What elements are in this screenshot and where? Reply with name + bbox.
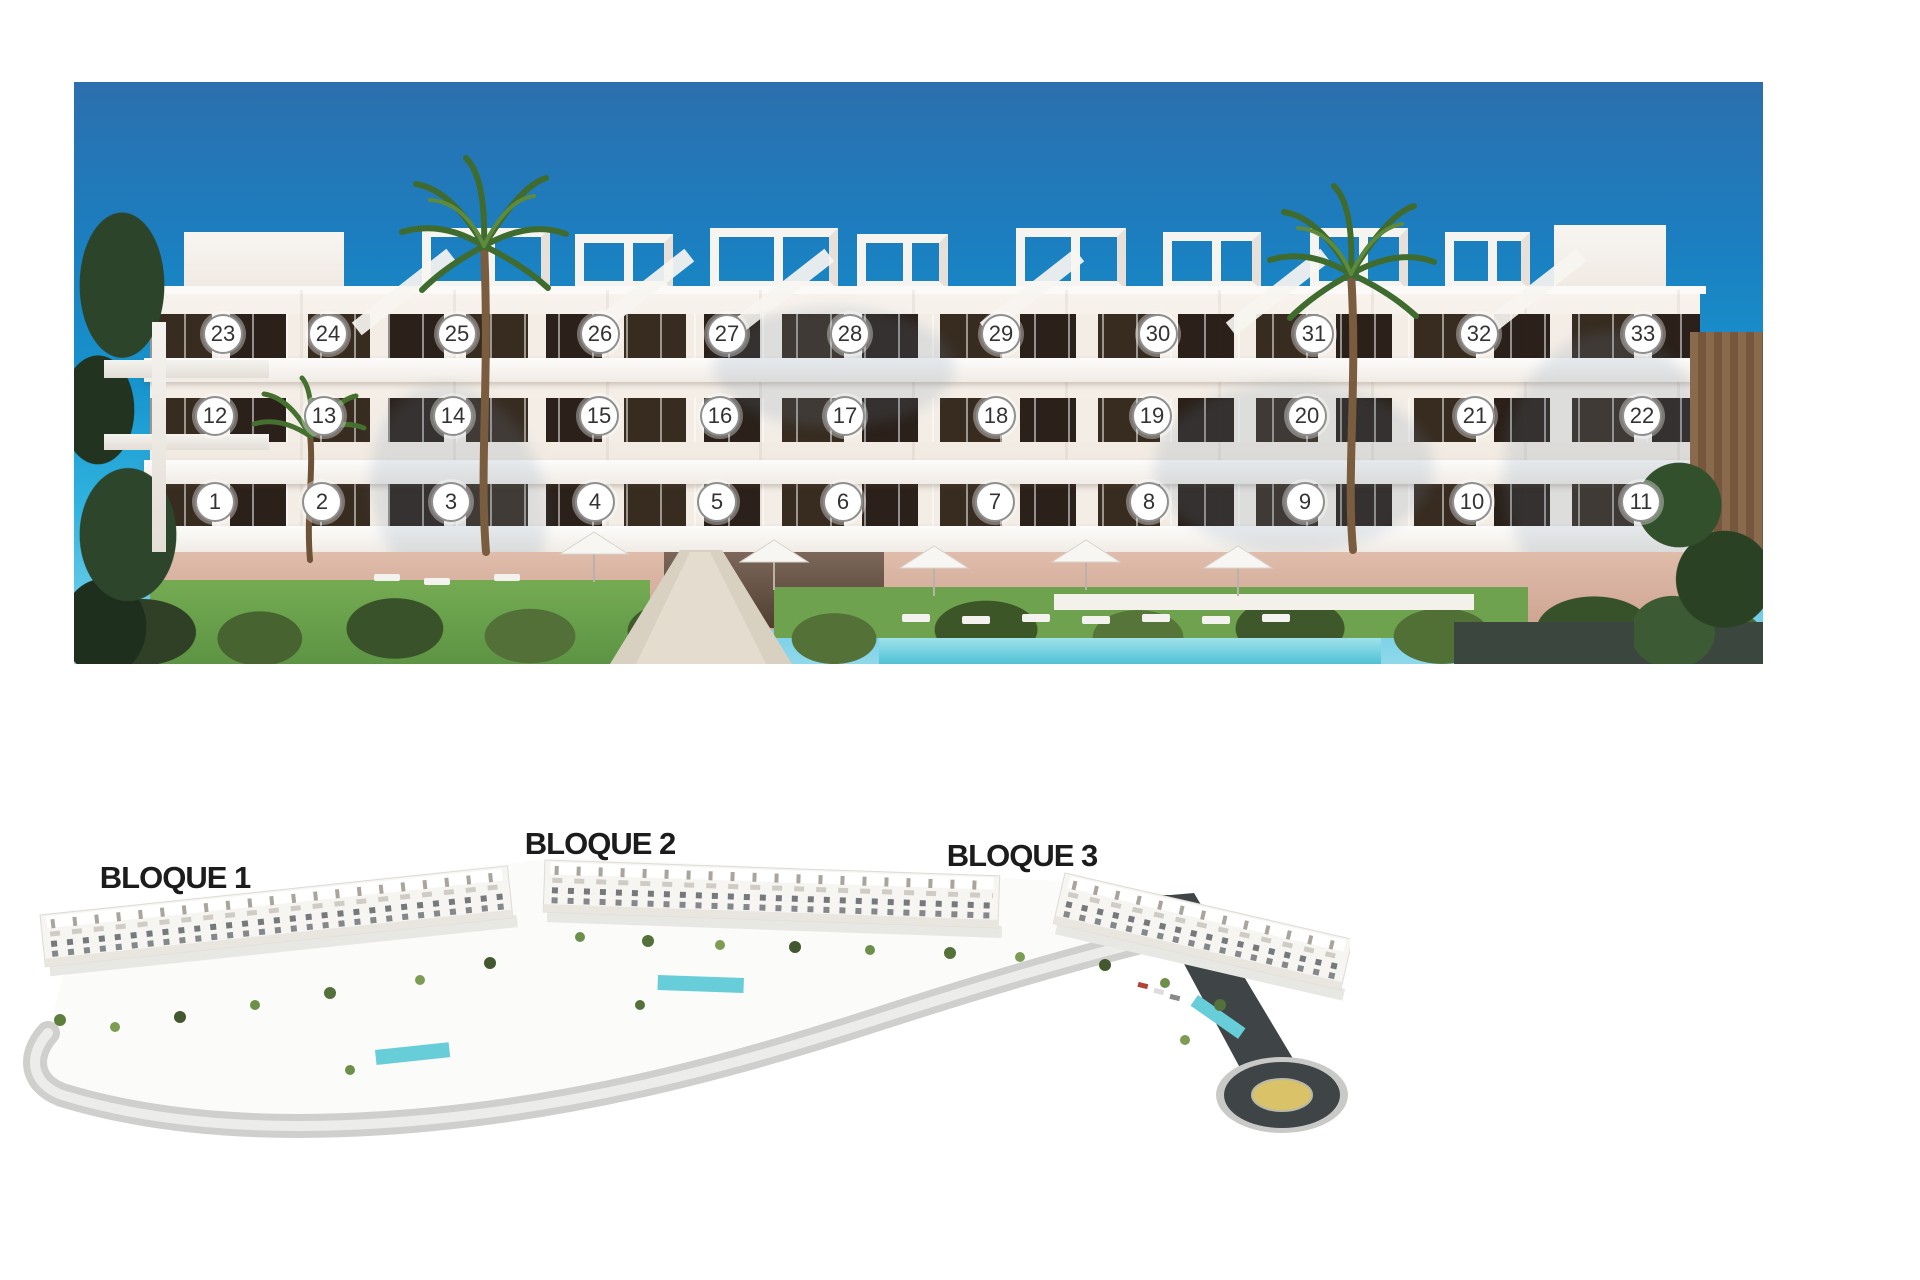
unit-badge-2[interactable]: 2 — [302, 482, 342, 522]
parked-cars — [1137, 982, 1180, 1001]
unit-badge-3[interactable]: 3 — [431, 482, 471, 522]
unit-badge-27[interactable]: 27 — [707, 314, 747, 354]
unit-badge-13[interactable]: 13 — [304, 396, 344, 436]
roundabout-center — [1252, 1079, 1312, 1111]
unit-badge-8[interactable]: 8 — [1129, 482, 1169, 522]
unit-badge-20[interactable]: 20 — [1287, 396, 1327, 436]
unit-badge-12[interactable]: 12 — [195, 396, 235, 436]
unit-badge-25[interactable]: 25 — [437, 314, 477, 354]
label-bloque-3: BLOQUE 3 — [947, 838, 1097, 874]
unit-badge-33[interactable]: 33 — [1623, 314, 1663, 354]
unit-badge-17[interactable]: 17 — [825, 396, 865, 436]
unit-badge-31[interactable]: 31 — [1294, 314, 1334, 354]
unit-badge-11[interactable]: 11 — [1621, 482, 1661, 522]
unit-badge-6[interactable]: 6 — [823, 482, 863, 522]
unit-badge-10[interactable]: 10 — [1452, 482, 1492, 522]
unit-badge-16[interactable]: 16 — [700, 396, 740, 436]
label-bloque-2: BLOQUE 2 — [525, 826, 675, 862]
unit-badge-28[interactable]: 28 — [830, 314, 870, 354]
unit-badge-24[interactable]: 24 — [308, 314, 348, 354]
bloque-2-pool — [657, 975, 743, 993]
unit-badge-23[interactable]: 23 — [203, 314, 243, 354]
unit-badge-19[interactable]: 19 — [1132, 396, 1172, 436]
unit-badge-21[interactable]: 21 — [1455, 396, 1495, 436]
label-bloque-1: BLOQUE 1 — [100, 860, 250, 896]
unit-badge-layer: 1234567891011121314151617181920212223242… — [74, 82, 1763, 664]
unit-badge-7[interactable]: 7 — [975, 482, 1015, 522]
unit-badge-4[interactable]: 4 — [575, 482, 615, 522]
unit-badge-15[interactable]: 15 — [579, 396, 619, 436]
unit-badge-18[interactable]: 18 — [976, 396, 1016, 436]
unit-badge-14[interactable]: 14 — [433, 396, 473, 436]
site-plan-render — [20, 855, 1350, 1145]
unit-badge-22[interactable]: 22 — [1622, 396, 1662, 436]
unit-badge-30[interactable]: 30 — [1138, 314, 1178, 354]
page-canvas: 1234567891011121314151617181920212223242… — [0, 0, 1920, 1280]
unit-badge-29[interactable]: 29 — [981, 314, 1021, 354]
unit-badge-32[interactable]: 32 — [1459, 314, 1499, 354]
unit-badge-26[interactable]: 26 — [580, 314, 620, 354]
unit-badge-1[interactable]: 1 — [195, 482, 235, 522]
facade-photo: 1234567891011121314151617181920212223242… — [74, 82, 1763, 664]
unit-badge-5[interactable]: 5 — [697, 482, 737, 522]
unit-badge-9[interactable]: 9 — [1285, 482, 1325, 522]
site-plan: BLOQUE 1 BLOQUE 2 BLOQUE 3 — [20, 855, 1350, 1145]
